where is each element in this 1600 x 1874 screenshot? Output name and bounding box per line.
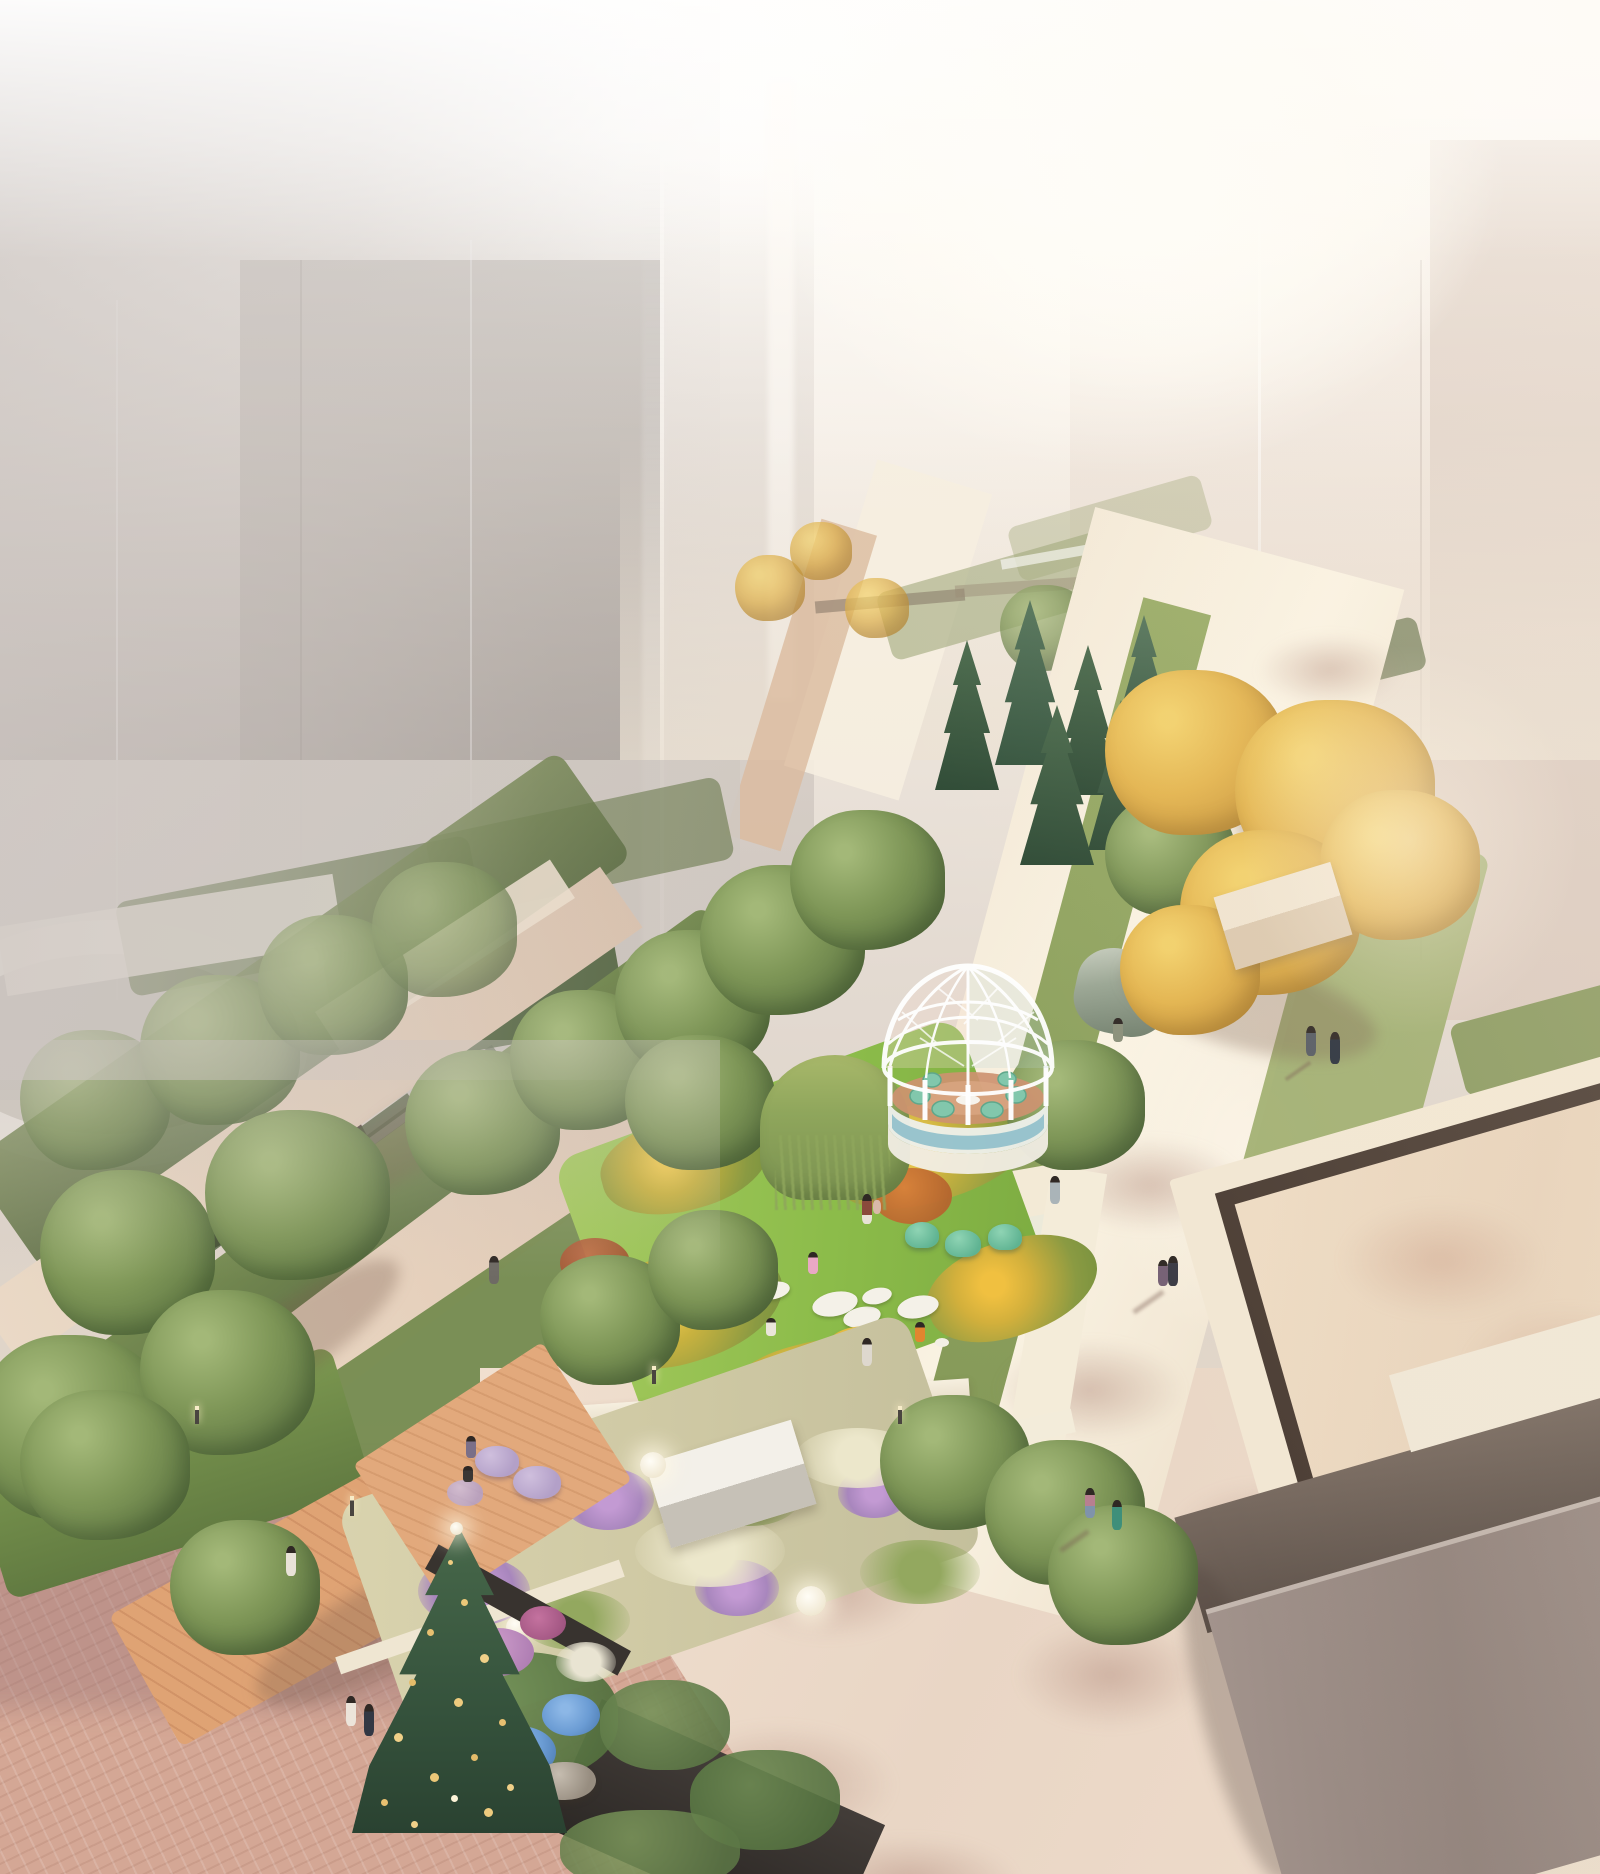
warm-light-cast	[0, 0, 1600, 1874]
rendering-scene	[0, 0, 1600, 1874]
